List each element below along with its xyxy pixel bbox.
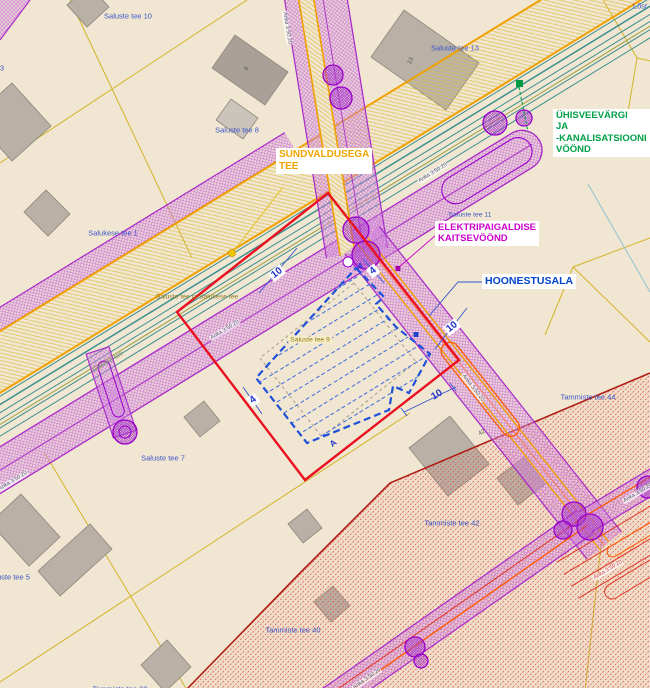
parcel-label-tammiste40: Tammiste tee 40 (265, 626, 320, 635)
map-canvas[interactable]: Saluste tee 10 Saluste tee 13 Saluste te… (0, 0, 650, 691)
annotation-sundvalduse: SUNDVALDUSEGA TEE (276, 148, 372, 174)
annotation-uvk-line2: JA (556, 121, 647, 132)
sundvalduse-point (229, 250, 236, 257)
annotation-elektri-line1: ELEKTRIPAIGALDISE (438, 222, 536, 233)
annotation-sundvalduse-line2: TEE (279, 161, 369, 173)
annotation-uvk: ÜHISVEEVÄRGI JA -KANALISATSIOONI VÖÖND (553, 109, 650, 157)
annotation-uvk-line1: ÜHISVEEVÄRGI (556, 110, 647, 121)
parcel-label-salukese1: Salukese tee 1 (88, 229, 138, 238)
parcel-label-corner: Lõst (633, 2, 647, 11)
map-drawing (0, 0, 650, 691)
junction-node (343, 257, 353, 267)
elektri-point (396, 266, 401, 271)
parcel-label-saluste3: 3 (0, 64, 4, 73)
parcel-label-tammiste44: Tammiste tee 44 (560, 393, 615, 402)
annotation-elektri-line2: KAITSEVÖÖND (438, 233, 536, 244)
parcel-label-saluste13: Saluste tee 13 (431, 44, 479, 53)
blue-point (414, 332, 419, 337)
parcel-label-saluste11: Saluste tee 11 (449, 212, 492, 219)
parcel-label-saluste8: Saluste tee 8 (215, 126, 259, 135)
section-marker-a1: A (355, 261, 365, 271)
road-label-combined: Saluste tee ja Salukese tee (156, 294, 238, 301)
parcel-label-saluste5: Saluste tee 5 (0, 573, 30, 582)
annotation-hoonestusala: HOONESTUSALA (482, 274, 576, 289)
parcel-label-tammiste42: Tammiste tee 42 (424, 519, 479, 528)
parcel-label-saluste7: Saluste tee 7 (141, 454, 185, 463)
annotation-sundvalduse-line1: SUNDVALDUSEGA (279, 149, 369, 161)
annotation-elektri: ELEKTRIPAIGALDISE KAITSEVÖÖND (435, 221, 539, 246)
uvk-connection-point (516, 80, 523, 87)
parcel-label-saluste10: Saluste tee 10 (104, 12, 152, 21)
annotation-uvk-line4: VÖÖND (556, 144, 647, 155)
annotation-uvk-line3: -KANALISATSIOONI (556, 133, 647, 144)
parcel-label-saluste9: Saluste tee 9 (288, 337, 332, 344)
